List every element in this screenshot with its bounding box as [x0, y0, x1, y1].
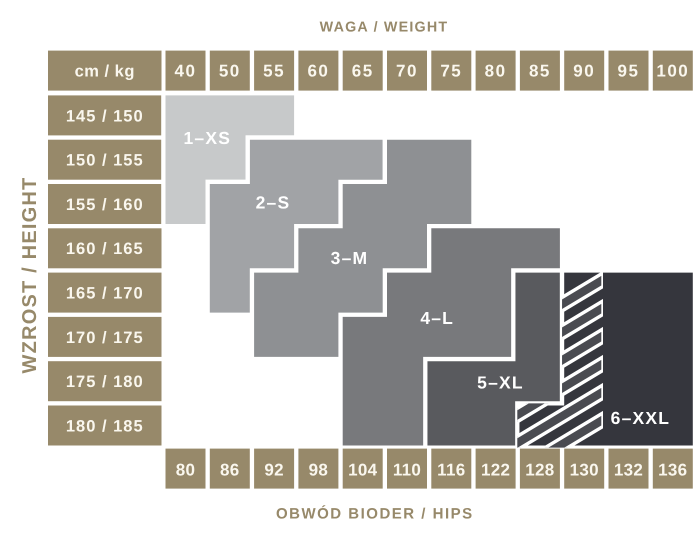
svg-text:50: 50 — [219, 62, 241, 81]
svg-text:95: 95 — [618, 62, 640, 81]
svg-text:OBWÓD BIODER / HIPS: OBWÓD BIODER / HIPS — [276, 504, 474, 522]
svg-text:75: 75 — [440, 62, 462, 81]
svg-text:85: 85 — [529, 62, 551, 81]
svg-text:cm / kg: cm / kg — [75, 63, 135, 81]
svg-text:128: 128 — [525, 461, 554, 480]
svg-text:100: 100 — [656, 62, 689, 81]
svg-text:150 / 155: 150 / 155 — [66, 152, 144, 170]
svg-text:132: 132 — [614, 461, 643, 480]
svg-text:90: 90 — [573, 62, 595, 81]
svg-text:155 / 160: 155 / 160 — [66, 196, 144, 214]
svg-text:165 / 170: 165 / 170 — [66, 285, 144, 303]
svg-text:65: 65 — [352, 62, 374, 81]
svg-text:136: 136 — [658, 461, 687, 480]
svg-text:92: 92 — [264, 461, 284, 480]
svg-text:104: 104 — [348, 461, 378, 480]
svg-text:145 / 150: 145 / 150 — [66, 107, 144, 125]
svg-text:80: 80 — [485, 62, 507, 81]
svg-text:80: 80 — [176, 461, 196, 480]
svg-text:55: 55 — [263, 62, 285, 81]
svg-text:175 / 180: 175 / 180 — [66, 373, 144, 391]
svg-text:6–XXL: 6–XXL — [611, 408, 671, 428]
svg-text:122: 122 — [481, 461, 510, 480]
svg-text:3–M: 3–M — [331, 248, 369, 268]
svg-text:130: 130 — [570, 461, 599, 480]
svg-text:86: 86 — [220, 461, 240, 480]
svg-text:70: 70 — [396, 62, 418, 81]
svg-text:4–L: 4–L — [420, 308, 454, 328]
svg-text:170 / 175: 170 / 175 — [66, 329, 144, 347]
svg-text:110: 110 — [393, 461, 421, 480]
svg-text:98: 98 — [309, 461, 329, 480]
svg-text:1–XS: 1–XS — [183, 128, 231, 148]
svg-text:40: 40 — [175, 62, 197, 81]
svg-text:180 / 185: 180 / 185 — [66, 417, 144, 435]
svg-text:60: 60 — [307, 62, 329, 81]
svg-text:2–S: 2–S — [256, 193, 291, 213]
svg-text:160 / 165: 160 / 165 — [66, 240, 144, 258]
svg-text:116: 116 — [437, 461, 465, 480]
svg-text:5–XL: 5–XL — [477, 373, 524, 393]
svg-text:WZROST / HEIGHT: WZROST / HEIGHT — [19, 177, 41, 374]
svg-text:WAGA / WEIGHT: WAGA / WEIGHT — [320, 20, 449, 36]
